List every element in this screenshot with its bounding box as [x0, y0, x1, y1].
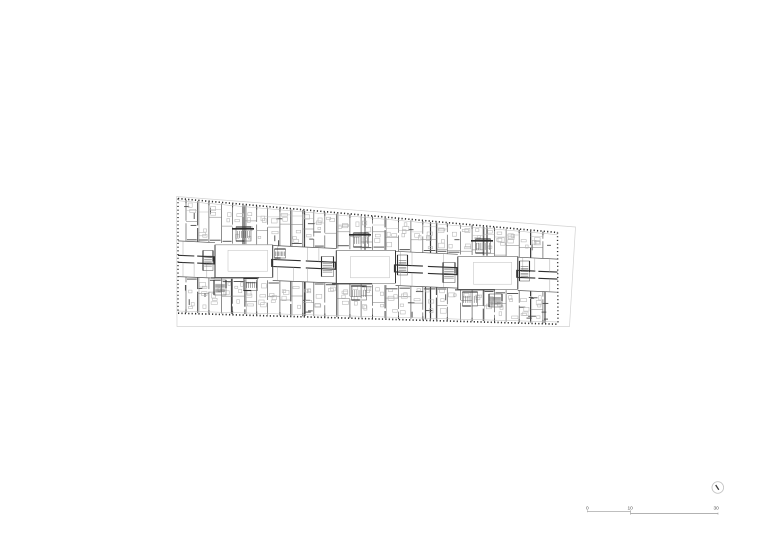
svg-text:30: 30	[714, 506, 720, 512]
